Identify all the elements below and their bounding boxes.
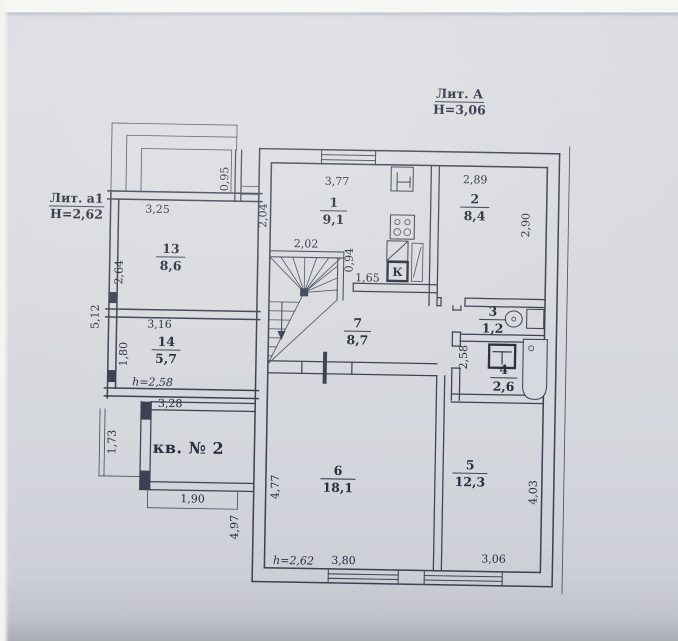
room-13-area: 8,6 (160, 258, 182, 273)
dim-stair-width: 2,02 (294, 237, 319, 250)
door-post-mark (323, 352, 328, 384)
room-14-area: 5,7 (155, 351, 177, 366)
room-7-area: 8,7 (346, 332, 368, 347)
dim-room2-depth: 2,90 (519, 213, 532, 238)
dim-room14-depth: 1,80 (117, 342, 130, 367)
kitchen-sink-unit-icon (391, 167, 413, 191)
scanned-floor-plan-sheet: К (0, 0, 678, 641)
room-1-area: 9,1 (322, 212, 344, 227)
dim-room6-height: h=2,62 (273, 554, 314, 568)
room-6-area: 18,1 (322, 480, 353, 496)
kitchen-fixtures: К (386, 167, 424, 282)
dim-room6-depth: 4,77 (269, 475, 282, 500)
stair-direction-arrow-icon (277, 302, 286, 340)
room-6-number: 6 (334, 463, 343, 478)
window-room6 (328, 569, 398, 584)
apartment-number-label: кв. № 2 (153, 438, 225, 458)
annex-height-label: Н=2,62 (50, 206, 103, 222)
room-4-area: 2,6 (493, 379, 515, 394)
dim-room14-width: 3,16 (147, 318, 172, 331)
room-14-number: 14 (157, 334, 175, 349)
window-room5 (424, 571, 502, 586)
dim-stair-gap: 0,94 (343, 248, 356, 273)
dim-room13-depth: 2,64 (112, 260, 125, 285)
dim-room2-width: 2,89 (463, 173, 488, 186)
dim-room1-width: 3,77 (325, 175, 350, 188)
floor-plan-drawing: К (0, 0, 678, 641)
dimension-labels: 3,77 2,89 2,04 2,02 0,94 1,65 2,90 0,95 … (84, 164, 545, 571)
dim-kitchen-opening: 1,65 (355, 271, 380, 284)
dim-bath-depth: 2,58 (457, 345, 470, 370)
dim-annex-gap: 0,95 (218, 167, 231, 192)
room-13-number: 13 (162, 241, 180, 256)
kitchen-mark-label: К (392, 265, 403, 279)
dim-room5-depth: 4,03 (527, 480, 540, 505)
winder-staircase (268, 251, 344, 365)
room-5-area: 12,3 (455, 474, 486, 490)
dim-left-lower: 4,97 (228, 515, 241, 540)
dim-room5-width: 3,06 (481, 552, 506, 565)
room-7-number: 7 (353, 315, 362, 330)
room-3-area: 1,2 (482, 320, 504, 335)
room-1-number: 1 (329, 195, 338, 210)
plan: К (43, 79, 571, 594)
stove-icon (390, 215, 414, 239)
annex-liter-label: Лит. а1 (50, 190, 104, 206)
main-building-walls (252, 142, 570, 594)
title-block-building: Лит. А Н=3,06 (433, 86, 487, 118)
room-2-area: 8,4 (464, 208, 486, 223)
title-block-annex: Лит. а1 Н=2,62 (49, 190, 104, 222)
window-top-wall (321, 150, 375, 165)
letter-k-box: К (387, 262, 407, 281)
dim-room6-width: 3,80 (331, 554, 356, 567)
building-liter-label: Лит. А (436, 86, 484, 102)
building-height-label: Н=3,06 (433, 102, 486, 118)
toilet-icon (505, 309, 544, 329)
room-2-number: 2 (470, 191, 479, 206)
room-5-number: 5 (466, 457, 475, 472)
dim-porch-depth: 1,73 (105, 430, 118, 455)
dim-room1-depth: 2,04 (256, 203, 269, 228)
dim-annex-side: 5,12 (89, 304, 102, 329)
dim-porch-width: 1,90 (180, 492, 205, 505)
counter-icon (411, 243, 423, 281)
dim-annex-bottom: 3,28 (158, 397, 183, 410)
bathtub-icon (522, 339, 547, 399)
room-4-number: 4 (499, 362, 508, 377)
room-3-number: 3 (488, 304, 497, 319)
dim-room13-width: 3,25 (145, 203, 170, 216)
dim-room14-height: h=2,58 (132, 375, 173, 389)
sink-icon (387, 241, 408, 261)
